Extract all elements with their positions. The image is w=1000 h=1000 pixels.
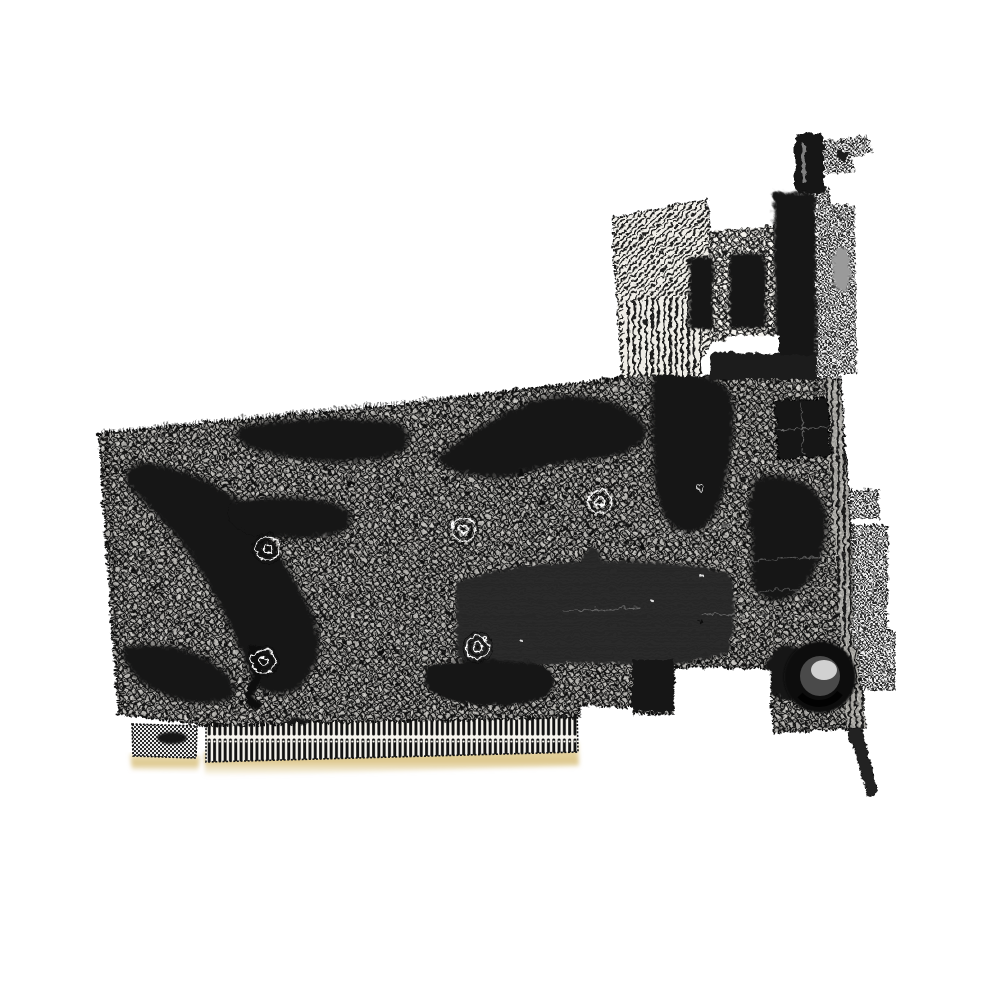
port-dark-block [772,190,816,356]
photo-canvas [0,0,1000,1000]
port-base-band [708,350,816,378]
port-slot-1 [688,256,712,328]
capacitor [784,641,856,713]
gpu-chip [774,397,830,458]
port-slot-2 [728,252,764,326]
port-screw-post [831,245,849,291]
product-photo [0,0,1000,1000]
edge-connector-key [132,724,197,758]
